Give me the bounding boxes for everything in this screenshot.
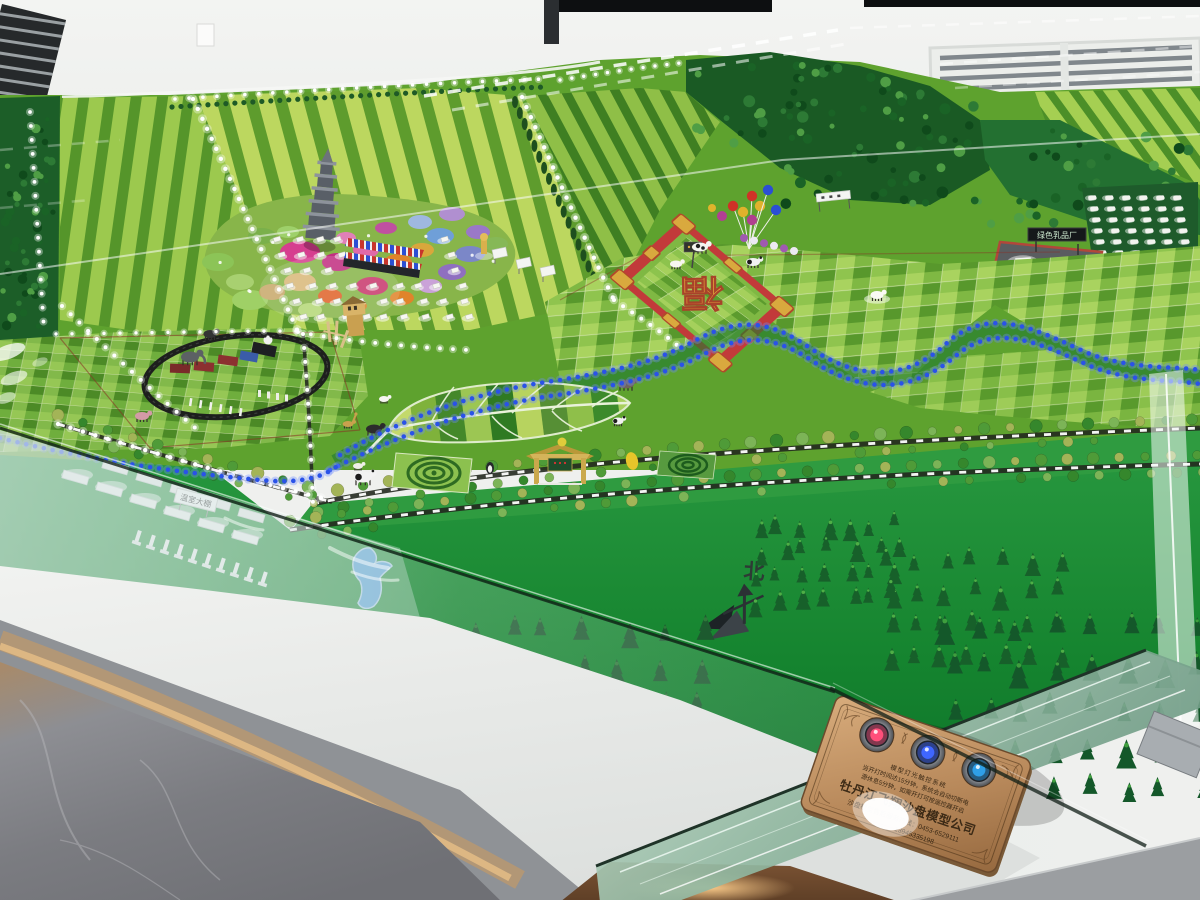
led-dot-blue — [1089, 364, 1094, 369]
forest-tree — [743, 95, 755, 107]
tent — [1139, 195, 1147, 200]
flower-patch — [408, 215, 432, 229]
led-dot — [281, 486, 285, 490]
avenue-tree — [1062, 453, 1073, 464]
led-dot-blue — [898, 367, 903, 372]
led-dot — [121, 362, 125, 366]
balloon — [763, 185, 773, 195]
forest-tree — [829, 124, 834, 129]
pine-tip — [953, 653, 957, 657]
hedge-tree — [466, 88, 471, 93]
hedge-bush — [750, 237, 758, 245]
poplar-tree — [556, 195, 562, 207]
led-dot — [639, 317, 643, 321]
led-dot-blue — [872, 382, 877, 387]
sand-table-model-photo: 绿色乳品厂 福 — [0, 0, 1200, 900]
tent — [1090, 206, 1098, 211]
pine-tip — [1090, 657, 1094, 661]
forest-tree — [987, 220, 995, 228]
led-dot-blue — [812, 349, 817, 354]
led-dot — [286, 307, 290, 311]
led-dot — [278, 329, 281, 332]
hedge-tree — [241, 100, 246, 105]
led-dot — [130, 370, 134, 374]
led-dot-blue — [738, 323, 743, 328]
led-dot — [257, 92, 261, 96]
forest-tree — [903, 180, 909, 186]
poplar-tree — [541, 162, 547, 174]
led-dot-blue — [611, 368, 616, 373]
led-dot-blue — [846, 376, 851, 381]
led-dot — [33, 194, 37, 198]
led-dot — [205, 127, 209, 131]
forest-tree — [729, 138, 738, 147]
led-dot-blue — [175, 469, 180, 474]
led-dot-blue — [805, 344, 810, 349]
led-dot — [308, 444, 312, 448]
led-dot — [309, 458, 313, 462]
pagoda-tier — [320, 164, 333, 175]
led-dot-blue — [711, 330, 716, 335]
avenue-tree — [887, 480, 896, 489]
forest-tree — [748, 63, 756, 71]
led-dot — [77, 321, 81, 325]
hedge-tree — [511, 86, 516, 91]
avenue-tree — [465, 493, 476, 504]
led-dot-blue — [836, 361, 841, 366]
pine-tip — [1088, 775, 1091, 778]
avenue-tree — [1063, 437, 1073, 447]
pine-tip — [983, 654, 986, 657]
avenue-tree — [285, 493, 292, 500]
tent — [1130, 239, 1138, 244]
pine-tip — [851, 565, 854, 568]
led-dot-blue — [890, 382, 895, 387]
forest-tree — [1183, 145, 1194, 156]
led-dot-blue — [558, 392, 563, 397]
figure-head — [354, 412, 357, 415]
avenue-tree — [965, 476, 973, 484]
tent — [1145, 228, 1153, 233]
led-dot-blue — [1054, 336, 1059, 341]
pine-tip — [990, 700, 993, 703]
led-dot — [201, 95, 205, 99]
pine-tip — [1028, 645, 1032, 649]
led-dot — [193, 462, 197, 466]
led-dot-blue — [361, 440, 366, 445]
avenue-tree — [1068, 471, 1079, 482]
led-dot — [155, 451, 159, 455]
led-dot-blue — [940, 364, 945, 369]
led-dot-blue — [291, 479, 296, 484]
led-dot-blue — [333, 465, 338, 470]
forest-tree — [917, 93, 924, 100]
panda-ear — [372, 470, 375, 473]
pine-tip — [942, 619, 947, 624]
led-dot — [237, 197, 241, 201]
forest-tree — [860, 105, 867, 112]
led-dot-blue — [505, 387, 510, 392]
avenue-tree — [369, 523, 378, 532]
led-dot — [308, 430, 312, 434]
avenue-tree — [1082, 418, 1094, 430]
led-dot — [551, 165, 555, 169]
avenue-tree — [874, 428, 887, 441]
panda-figure — [354, 470, 376, 486]
poplar-tree — [566, 217, 572, 229]
led-dot — [36, 236, 40, 240]
led-dot — [648, 323, 652, 327]
forest-tree — [1032, 212, 1040, 220]
forest-tree — [1016, 198, 1023, 205]
led-dot — [180, 459, 184, 463]
led-dot — [383, 85, 387, 89]
hedge-tree — [439, 89, 444, 94]
led-dot — [303, 360, 307, 364]
led-dot — [601, 275, 605, 279]
led-dot-blue — [166, 467, 171, 472]
forest-tree — [897, 97, 906, 106]
led-dot — [81, 429, 85, 433]
pine-tip — [954, 701, 957, 704]
led-dot — [196, 107, 200, 111]
led-dot — [262, 329, 265, 332]
led-dot — [34, 208, 38, 212]
led-dot-blue — [567, 376, 572, 381]
forest-tree — [828, 110, 835, 117]
garden-light — [424, 235, 427, 238]
led-dot — [272, 277, 276, 281]
pine-tip — [867, 565, 869, 567]
poplar-tree — [527, 129, 533, 141]
pine-tip — [1017, 663, 1022, 668]
led-dot-blue — [1106, 370, 1111, 375]
pine-tip — [849, 522, 853, 526]
led-dot — [219, 157, 223, 161]
pine-tip — [880, 539, 883, 542]
led-dot-blue — [1045, 333, 1050, 338]
led-dot — [268, 267, 272, 271]
led-dot-blue — [575, 390, 580, 395]
forest-tree — [896, 141, 905, 150]
balloon — [728, 201, 738, 211]
forest-tree — [45, 117, 49, 121]
forest-tree — [1049, 218, 1059, 228]
pine-tip — [898, 539, 901, 542]
forest-tree — [781, 198, 792, 209]
fortune-character: 福 — [680, 271, 724, 314]
led-dot-blue — [880, 370, 885, 375]
forest-tree — [939, 103, 950, 114]
hedge-tree — [304, 96, 309, 101]
forest-tree — [937, 163, 946, 172]
forest-tree — [12, 237, 20, 245]
avenue-tree — [1087, 452, 1099, 464]
avenue-tree — [978, 423, 990, 435]
led-dot-blue — [746, 322, 751, 327]
forest-tree — [965, 121, 973, 129]
led-dot — [131, 444, 135, 448]
led-dot-blue — [930, 352, 935, 357]
led-dot-blue — [461, 414, 466, 419]
led-dot — [271, 91, 275, 95]
pine-tip — [1088, 615, 1091, 618]
led-dot — [560, 185, 564, 189]
led-dot — [243, 93, 247, 97]
wall-column-strip — [544, 0, 559, 44]
penguin-belly — [488, 465, 492, 473]
led-dot — [230, 330, 233, 333]
led-dot — [311, 500, 315, 504]
forest-tree — [866, 73, 875, 82]
led-dot — [259, 247, 263, 251]
avenue-tree — [152, 439, 163, 450]
led-dot — [578, 225, 582, 229]
avenue-tree — [595, 481, 605, 491]
forest-tree — [696, 125, 705, 134]
hedge-tree — [529, 85, 534, 90]
led-dot — [677, 61, 680, 64]
hedge-tree — [295, 97, 300, 102]
led-dot-blue — [444, 419, 449, 424]
pine-tip — [968, 548, 971, 551]
led-dot-blue — [575, 375, 580, 380]
led-dot-blue — [944, 341, 949, 346]
poplar-tree — [512, 96, 518, 108]
led-dot-blue — [1186, 380, 1191, 385]
led-dot-blue — [704, 351, 709, 356]
led-dot — [582, 75, 585, 78]
fence-picket — [258, 390, 261, 397]
panda-ear — [759, 256, 762, 259]
avenue-tree — [626, 495, 637, 506]
led-dot-blue — [906, 365, 911, 370]
hedge-tree — [520, 85, 525, 90]
tent — [1158, 206, 1166, 211]
pine-tip — [1128, 785, 1131, 788]
led-dot-blue — [1133, 375, 1138, 380]
led-dot-blue — [345, 448, 350, 453]
hedge-tree — [340, 94, 345, 99]
led-dot-blue — [899, 381, 904, 386]
led-dot-blue — [1193, 367, 1198, 372]
avenue-tree — [719, 439, 730, 450]
poplar-tree — [522, 118, 528, 130]
led-dot-blue — [1011, 322, 1016, 327]
forest-tree — [21, 249, 26, 254]
led-dot-blue — [219, 474, 224, 479]
avenue-tree — [649, 464, 656, 471]
led-dot — [546, 155, 550, 159]
led-dot-blue — [1081, 361, 1086, 366]
pine-tree — [1083, 778, 1098, 794]
pine-tip — [890, 650, 894, 654]
led-dot — [35, 222, 39, 226]
figure-head — [882, 290, 887, 295]
led-dot-blue — [925, 373, 930, 378]
avenue-tree — [939, 477, 948, 486]
avenue-tree — [983, 456, 995, 468]
avenue-tree — [544, 486, 553, 495]
tent — [1105, 195, 1113, 200]
forest-tree — [937, 186, 949, 198]
pagoda-tier — [317, 177, 333, 188]
tent — [1094, 228, 1102, 233]
led-dot-blue — [326, 470, 331, 475]
hedge-tree — [250, 99, 255, 104]
forest-tree — [695, 71, 702, 78]
led-dot — [464, 348, 468, 352]
led-dot-blue — [654, 356, 659, 361]
forest-tree — [1149, 161, 1159, 171]
led-dot — [594, 73, 597, 76]
avenue-tree — [987, 442, 994, 449]
led-dot-blue — [352, 456, 357, 461]
led-dot-blue — [637, 377, 642, 382]
avenue-tree — [519, 476, 528, 485]
led-dot — [596, 265, 600, 269]
avenue-tree — [545, 473, 554, 482]
avenue-tree — [1090, 437, 1098, 445]
led-dot — [304, 374, 308, 378]
led-dot — [157, 394, 161, 398]
led-dot-blue — [993, 321, 998, 326]
led-dot-blue — [671, 366, 676, 371]
led-dot — [33, 180, 37, 184]
forest-tree — [900, 195, 909, 204]
led-dot — [54, 332, 57, 335]
pine-tree — [1116, 747, 1137, 769]
forest-tree — [798, 76, 804, 82]
led-dot — [31, 152, 35, 156]
led-dot — [612, 298, 616, 302]
pine-tip — [855, 588, 858, 591]
led-dot — [347, 338, 351, 342]
led-dot — [294, 329, 297, 332]
led-dot — [30, 138, 34, 142]
avenue-tree — [1114, 453, 1123, 462]
pine-tip — [703, 617, 707, 621]
led-dot-blue — [1112, 359, 1117, 364]
led-dot-blue — [797, 339, 802, 344]
led-dot — [40, 292, 44, 296]
led-dot-blue — [646, 374, 651, 379]
led-dot-blue — [402, 420, 407, 425]
forest-tree — [971, 197, 979, 205]
pine-tree — [1122, 787, 1136, 802]
led-dot — [592, 255, 596, 259]
pine-tip — [773, 568, 775, 570]
avenue-tree — [52, 409, 64, 421]
led-dot-blue — [688, 359, 693, 364]
led-dot-blue — [729, 324, 734, 329]
pine-tip — [942, 587, 945, 590]
forest-tree — [922, 199, 929, 206]
led-dot-blue — [504, 402, 509, 407]
tent — [1164, 239, 1172, 244]
forest-tree — [1029, 199, 1038, 208]
cow-patch — [701, 246, 705, 250]
pine-tip — [1026, 616, 1029, 619]
forest-tree — [889, 112, 897, 120]
led-dot — [341, 87, 345, 91]
led-dot-blue — [1073, 357, 1078, 362]
forest-tree — [0, 288, 5, 293]
led-dot — [313, 89, 317, 93]
led-dot-blue — [210, 473, 215, 478]
hedge-bush — [770, 242, 778, 250]
forest-tree — [899, 117, 904, 122]
tent — [1126, 217, 1134, 222]
figure-head — [147, 411, 152, 416]
led-dot-blue — [478, 409, 483, 414]
led-dot-blue — [264, 478, 269, 483]
pine-tip — [802, 590, 806, 594]
led-dot-blue — [540, 380, 545, 385]
led-dot-blue — [487, 391, 492, 396]
avenue-tree — [757, 487, 766, 496]
led-dot-blue — [531, 382, 536, 387]
led-dot-blue — [360, 452, 365, 457]
avenue-tree — [900, 426, 913, 439]
led-dot — [148, 386, 152, 390]
hedge-tree — [385, 92, 390, 97]
led-dot — [184, 418, 188, 422]
pine-tip — [913, 556, 916, 559]
forest-tree — [871, 192, 879, 200]
forest-tree — [47, 157, 55, 165]
forest-tree — [923, 114, 929, 120]
led-dot-blue — [549, 379, 554, 384]
led-dot — [606, 285, 610, 289]
poplar-tree — [571, 228, 577, 240]
avenue-tree — [1016, 473, 1026, 483]
pine-tip — [970, 612, 973, 615]
poplar-tree — [517, 107, 523, 119]
avenue-tree — [1057, 420, 1067, 430]
led-dot-blue — [637, 361, 642, 366]
hedge-tree — [367, 93, 372, 98]
pine-tip — [1061, 554, 1064, 557]
led-dot — [319, 496, 323, 500]
pine-tip — [754, 599, 757, 602]
tent — [1175, 206, 1183, 211]
led-dot-blue — [452, 416, 457, 421]
forest-tree — [1061, 133, 1067, 139]
avenue-tree — [796, 432, 809, 445]
led-dot — [538, 135, 542, 139]
forest-tree — [797, 129, 805, 137]
led-dot-blue — [410, 431, 415, 436]
pine-tip — [755, 573, 758, 576]
led-dot-blue — [602, 385, 607, 390]
pine-tip — [825, 537, 827, 539]
led-dot — [232, 187, 236, 191]
led-dot-blue — [1175, 366, 1180, 371]
led-dot — [223, 167, 227, 171]
forest-tree — [833, 64, 842, 73]
led-dot-blue — [703, 333, 708, 338]
led-dot-blue — [1195, 381, 1200, 386]
forest-tree — [7, 313, 16, 322]
led-dot-blue — [566, 391, 571, 396]
led-dot — [453, 81, 457, 85]
forest-tree — [799, 62, 806, 69]
fence-picket — [267, 392, 270, 399]
led-dot-blue — [889, 369, 894, 374]
led-dot-blue — [1013, 337, 1018, 342]
led-dot-blue — [862, 369, 867, 374]
